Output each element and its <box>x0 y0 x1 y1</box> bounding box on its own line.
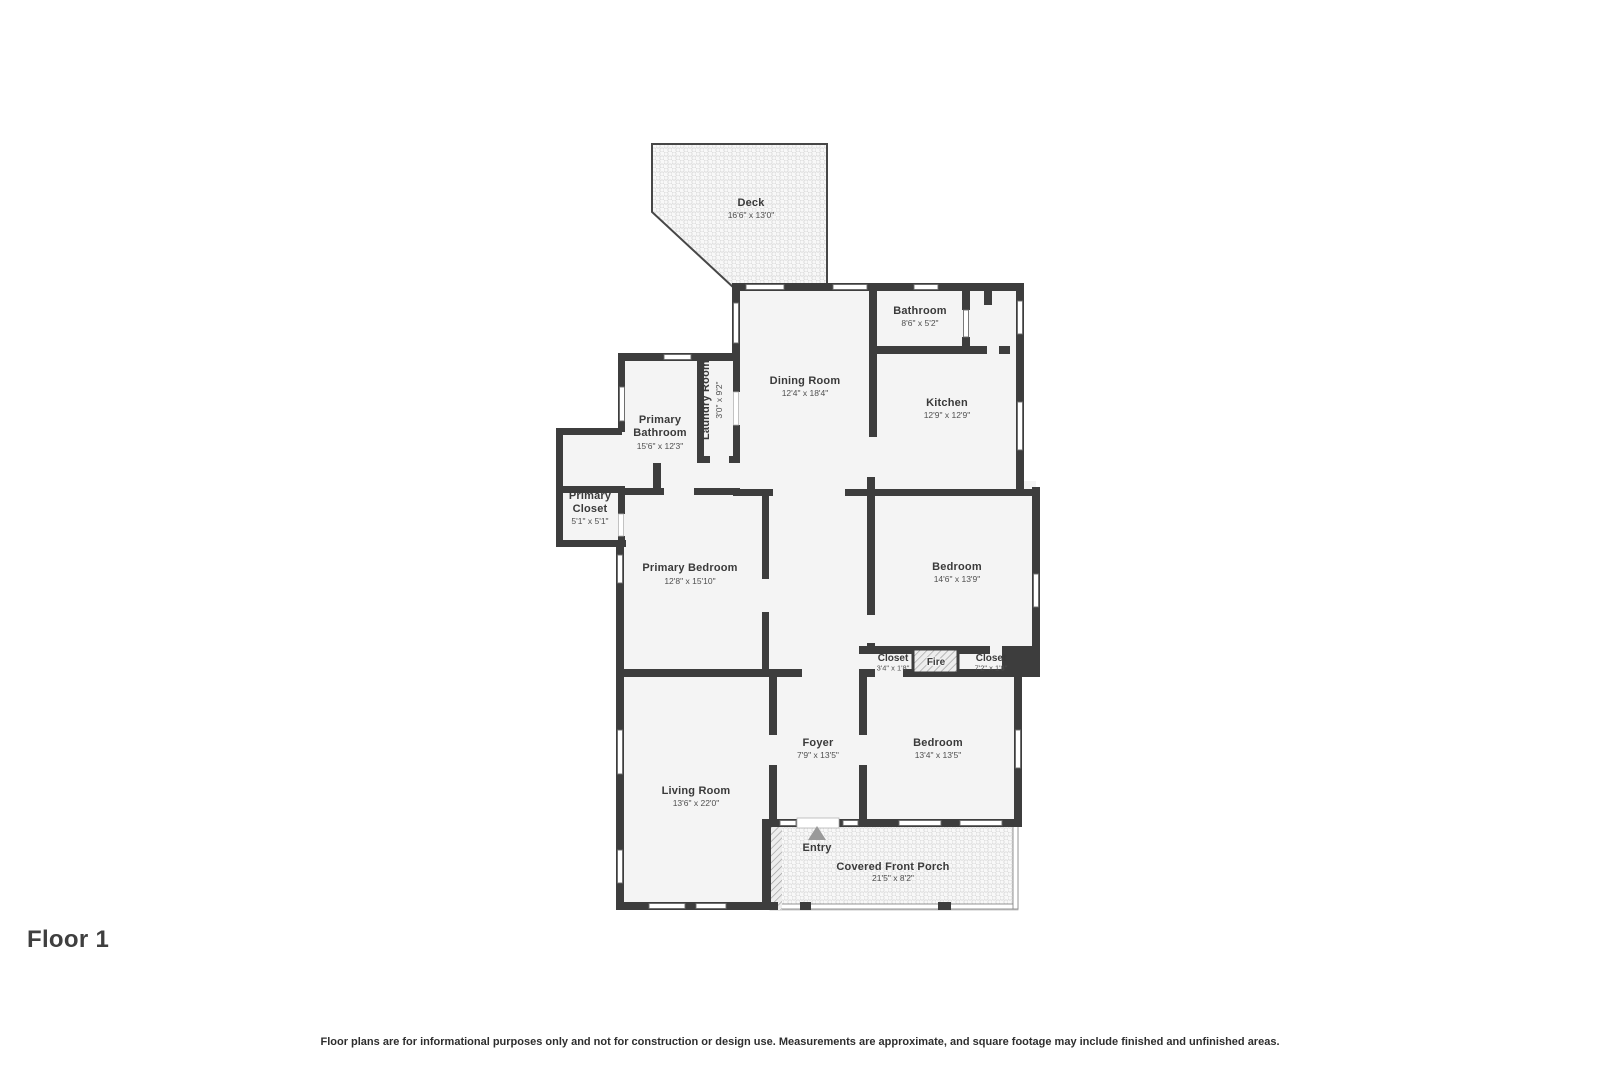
room-dims: 3'0" x 9'2" <box>714 381 724 418</box>
room-name: Dining Room <box>770 375 841 387</box>
room-dims: 7'2" x 1'8" <box>975 664 1008 673</box>
room-label-closet-1: Closet 3'4" x 1'8" <box>877 653 910 673</box>
room-dims: 21'5" x 8'2" <box>872 873 914 883</box>
room-name: Deck <box>737 197 765 209</box>
room-label-fireplace: Fire <box>927 657 946 668</box>
room-dims: 12'9" x 12'9" <box>924 410 971 420</box>
room-label-foyer: Foyer 7'9" x 13'5" <box>797 737 839 760</box>
room-name: Living Room <box>662 785 731 797</box>
room-dims: 16'6" x 13'0" <box>728 210 775 220</box>
room-name: Foyer <box>803 737 834 749</box>
room-name: Bedroom <box>932 561 982 573</box>
room-label-primary-bathroom: Primary Bathroom 15'6" x 12'3" <box>633 414 687 451</box>
room-name: Bathroom <box>633 427 687 439</box>
disclaimer-text: Floor plans are for informational purpos… <box>0 1036 1600 1048</box>
room-name: Closet <box>573 503 608 515</box>
room-label-bedroom-2: Bedroom 13'4" x 13'5" <box>913 737 963 760</box>
room-label-bedroom-1: Bedroom 14'6" x 13'9" <box>932 561 982 584</box>
room-label-closet-2: Closet 7'2" x 1'8" <box>975 653 1008 673</box>
room-dims: 12'4" x 18'4" <box>782 388 829 398</box>
room-name: Closet <box>976 653 1007 664</box>
room-name: Bathroom <box>893 305 947 317</box>
room-dims: 14'6" x 13'9" <box>934 574 981 584</box>
room-dims: 3'4" x 1'8" <box>877 664 910 673</box>
room-dims: 12'8" x 15'10" <box>664 576 715 586</box>
room-name: Fire <box>927 657 946 668</box>
room-name: Laundry Room <box>700 360 712 440</box>
room-dims: 5'1" x 5'1" <box>571 516 608 526</box>
room-label-entry: Entry <box>802 842 832 854</box>
room-name: Entry <box>802 842 832 854</box>
room-dims: 15'6" x 12'3" <box>637 441 684 451</box>
room-dims: 7'9" x 13'5" <box>797 750 839 760</box>
floor-plan: Deck 16'6" x 13'0" Bathroom 8'6" x 5'2" … <box>0 0 1600 1066</box>
room-dims: 13'6" x 22'0" <box>673 798 720 808</box>
room-name: Covered Front Porch <box>836 861 949 873</box>
room-name: Primary <box>569 490 612 502</box>
room-label-primary-closet: Primary Closet 5'1" x 5'1" <box>569 490 612 526</box>
room-name: Kitchen <box>926 397 968 409</box>
room-name: Bedroom <box>913 737 963 749</box>
room-name: Primary Bedroom <box>642 562 737 574</box>
room-name: Primary <box>639 414 682 426</box>
floor-title: Floor 1 <box>27 926 109 954</box>
room-dims: 13'4" x 13'5" <box>915 750 962 760</box>
room-label-kitchen: Kitchen 12'9" x 12'9" <box>924 397 971 420</box>
room-name: Closet <box>878 653 909 664</box>
room-dims: 8'6" x 5'2" <box>901 318 938 328</box>
